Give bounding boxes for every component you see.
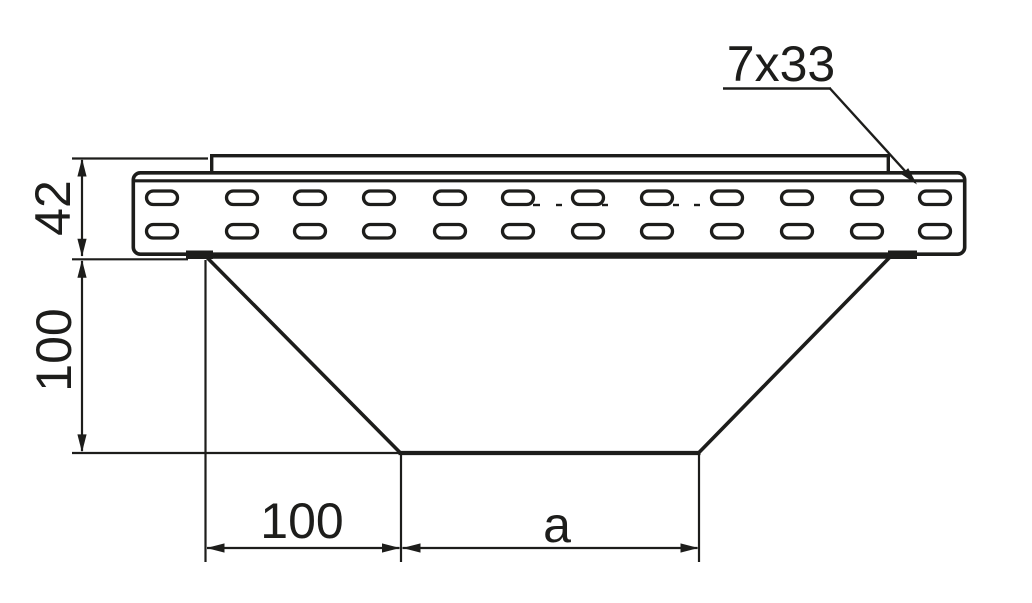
slot xyxy=(227,191,258,205)
slot xyxy=(227,225,258,239)
arrow-left xyxy=(207,543,225,552)
label-drop-height: 100 xyxy=(29,308,79,391)
arrow-down xyxy=(77,239,86,257)
flange-end-mark-right xyxy=(888,251,917,260)
arrow-up xyxy=(77,260,86,278)
slot xyxy=(852,225,883,239)
side-rail xyxy=(133,173,964,257)
label-slot-size: 7x33 xyxy=(727,39,835,89)
slot xyxy=(295,191,326,205)
slot xyxy=(712,191,743,205)
skirt-right-slant xyxy=(699,257,890,453)
reducer-skirt xyxy=(207,257,891,453)
label-width-a: a xyxy=(543,500,571,550)
label-offset-width: 100 xyxy=(260,496,343,546)
slot xyxy=(573,225,604,239)
slot xyxy=(147,191,178,205)
arrow-right xyxy=(681,543,699,552)
slot xyxy=(782,191,813,205)
slot xyxy=(364,225,395,239)
arrow-right xyxy=(382,543,400,552)
slot xyxy=(503,191,534,205)
slot xyxy=(782,225,813,239)
slot xyxy=(920,225,951,239)
slot xyxy=(712,225,743,239)
arrow-down xyxy=(77,434,86,452)
slot xyxy=(295,225,326,239)
slot xyxy=(573,191,604,205)
slot xyxy=(642,225,673,239)
slot xyxy=(642,191,673,205)
slot xyxy=(503,225,534,239)
side-rail-outline xyxy=(133,173,964,254)
arrow-up xyxy=(77,159,86,177)
arrow-left xyxy=(403,543,421,552)
drawing-canvas xyxy=(0,0,1032,603)
slot xyxy=(852,191,883,205)
label-rail-height: 42 xyxy=(28,180,78,236)
slot xyxy=(364,191,395,205)
slot xyxy=(920,191,951,205)
slot xyxy=(435,191,466,205)
skirt-left-slant xyxy=(207,257,401,453)
slot xyxy=(147,225,178,239)
slot xyxy=(435,225,466,239)
technical-drawing: 7x33 42 100 100 a xyxy=(0,0,1032,603)
